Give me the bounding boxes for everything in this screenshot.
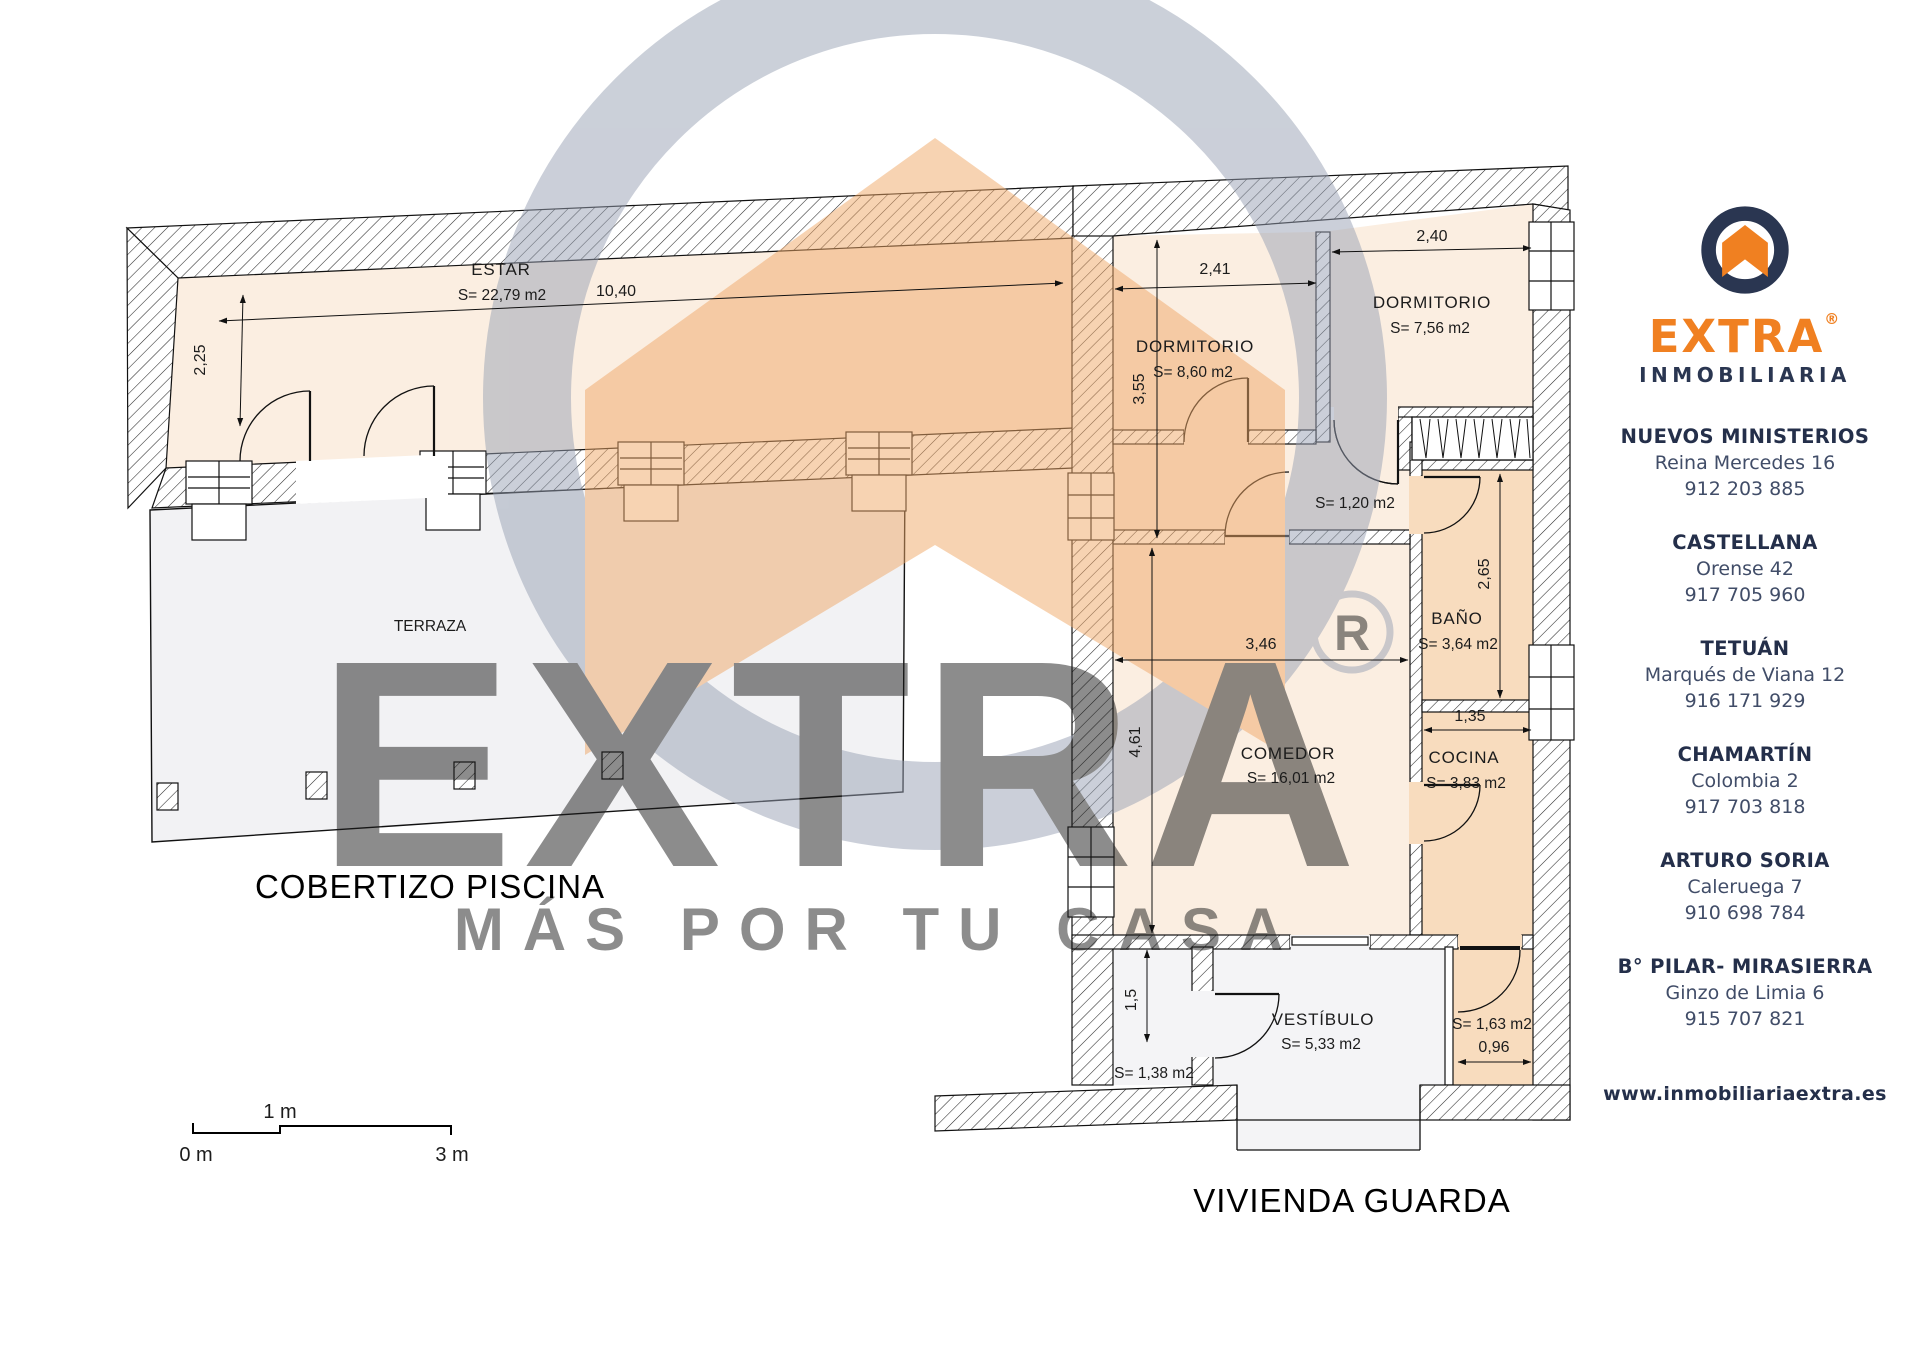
room-cocina (1422, 712, 1533, 935)
label-dormitorio-1-area: S= 8,60 m2 (1153, 364, 1233, 381)
watermark-registered-letter: R (1334, 605, 1370, 661)
brand-text: EXTRA (1649, 310, 1825, 363)
office-name: NUEVOS MINISTERIOS (1621, 423, 1870, 450)
office-name: ARTURO SORIA (1660, 847, 1830, 874)
registered-mark: ® (1824, 310, 1841, 328)
office-tetuan: TETUÁN Marqués de Viana 12 916 171 929 (1645, 635, 1845, 714)
scale-1m: 1 m (263, 1101, 296, 1123)
label-dormitorio-2: DORMITORIO (1373, 293, 1491, 312)
scale-3m: 3 m (435, 1144, 468, 1166)
office-address: Colombia 2 (1678, 768, 1813, 794)
office-phone: 916 171 929 (1645, 688, 1845, 714)
dim-comedor-width: 3,46 (1245, 636, 1276, 653)
dim-comedor-height: 4,61 (1127, 726, 1144, 757)
window (1529, 645, 1574, 740)
office-phone: 917 703 818 (1678, 794, 1813, 820)
office-address: Ginzo de Limia 6 (1618, 980, 1873, 1006)
office-arturo-soria: ARTURO SORIA Caleruega 7 910 698 784 (1660, 847, 1830, 926)
window (1529, 222, 1574, 310)
office-address: Orense 42 (1672, 556, 1817, 582)
office-address: Caleruega 7 (1660, 874, 1830, 900)
label-dormitorio-1: DORMITORIO (1136, 337, 1254, 356)
cobertizo-piscina-title: COBERTIZO PISCINA (255, 868, 605, 905)
office-phone: 915 707 821 (1618, 1006, 1873, 1032)
dim-aseo-height: 1,5 (1123, 989, 1140, 1011)
wall-aseo-right-b (1192, 1056, 1213, 1085)
dim-dorm2-width: 2,40 (1416, 228, 1447, 245)
office-chamartin: CHAMARTÍN Colombia 2 917 703 818 (1678, 741, 1813, 820)
office-phone: 917 705 960 (1672, 582, 1817, 608)
dim-dorm1-width: 2,41 (1199, 261, 1230, 278)
dim-estar-width: 10,40 (596, 283, 636, 300)
floorplan-page: EXTRA R MÁS POR TU CASA 10,40 2,25 2,41 … (0, 0, 1920, 1356)
label-dormitorio-2-area: S= 7,56 m2 (1390, 320, 1470, 337)
office-phone: 912 203 885 (1621, 476, 1870, 502)
wall-bottom-right (1420, 1085, 1570, 1120)
wall-mid-b (1410, 533, 1422, 783)
label-estar: ESTAR (471, 260, 530, 279)
label-cocina-area: S= 3,83 m2 (1426, 775, 1506, 792)
office-pilar-mirasierra: B° PILAR- MIRASIERRA Ginzo de Limia 6 91… (1618, 953, 1873, 1032)
vivienda-guarda-title: VIVIENDA GUARDA (1193, 1182, 1511, 1219)
wall-closet-bottom (1412, 460, 1533, 470)
logo-house-icon (1722, 225, 1768, 277)
label-aseo-area: S= 1,38 m2 (1114, 1065, 1194, 1082)
watermark-tagline: MÁS POR TU CASA (454, 896, 1302, 963)
label-terraza: TERRAZA (394, 618, 467, 635)
label-comedor-area: S= 16,01 m2 (1247, 770, 1335, 787)
agency-logo-icon (1693, 198, 1797, 302)
dim-pasillo-width: 0,96 (1478, 1039, 1509, 1056)
label-bano-area: S= 3,64 m2 (1418, 636, 1498, 653)
brand-name: EXTRA® (1649, 312, 1842, 359)
label-comedor: COMEDOR (1241, 744, 1335, 763)
wall-bottom-left (935, 1085, 1237, 1131)
dim-bano-height: 2,65 (1476, 558, 1493, 589)
window (186, 461, 252, 540)
label-cocina: COCINA (1429, 748, 1500, 767)
label-bano: BAÑO (1431, 609, 1482, 628)
label-pasillo-area: S= 1,63 m2 (1452, 1016, 1532, 1033)
office-name: CASTELLANA (1672, 529, 1817, 556)
label-vestibulo: VESTÍBULO (1272, 1010, 1375, 1029)
pillar (157, 783, 178, 810)
office-name: CHAMARTÍN (1678, 741, 1813, 768)
office-castellana: CASTELLANA Orense 42 917 705 960 (1672, 529, 1817, 608)
office-address: Marqués de Viana 12 (1645, 662, 1845, 688)
scale-bar: 1 m 0 m 3 m (179, 1101, 468, 1166)
label-hall-area: S= 1,20 m2 (1315, 495, 1395, 512)
closet (1412, 417, 1533, 460)
dim-cocina-width: 1,35 (1454, 708, 1485, 725)
agency-sidebar: EXTRA® INMOBILIARIA NUEVOS MINISTERIOS R… (1592, 198, 1898, 1105)
wall-bottomrow-c (1522, 935, 1533, 949)
office-nuevos-ministerios: NUEVOS MINISTERIOS Reina Mercedes 16 912… (1621, 423, 1870, 502)
wall-mid-c (1410, 843, 1422, 935)
office-name: B° PILAR- MIRASIERRA (1618, 953, 1873, 980)
dim-dorm1-height: 3,55 (1131, 373, 1148, 404)
dim-estar-height: 2,25 (192, 344, 209, 375)
office-phone: 910 698 784 (1660, 900, 1830, 926)
label-vestibulo-area: S= 5,33 m2 (1281, 1036, 1361, 1053)
brand-subtitle: INMOBILIARIA (1639, 363, 1851, 387)
scale-0m: 0 m (179, 1144, 212, 1166)
porch (1237, 1085, 1420, 1150)
label-estar-area: S= 22,79 m2 (458, 287, 546, 304)
office-name: TETUÁN (1645, 635, 1845, 662)
agency-website-link[interactable]: www.inmobiliariaextra.es (1603, 1083, 1887, 1105)
door-gap (296, 454, 448, 504)
office-address: Reina Mercedes 16 (1621, 450, 1870, 476)
